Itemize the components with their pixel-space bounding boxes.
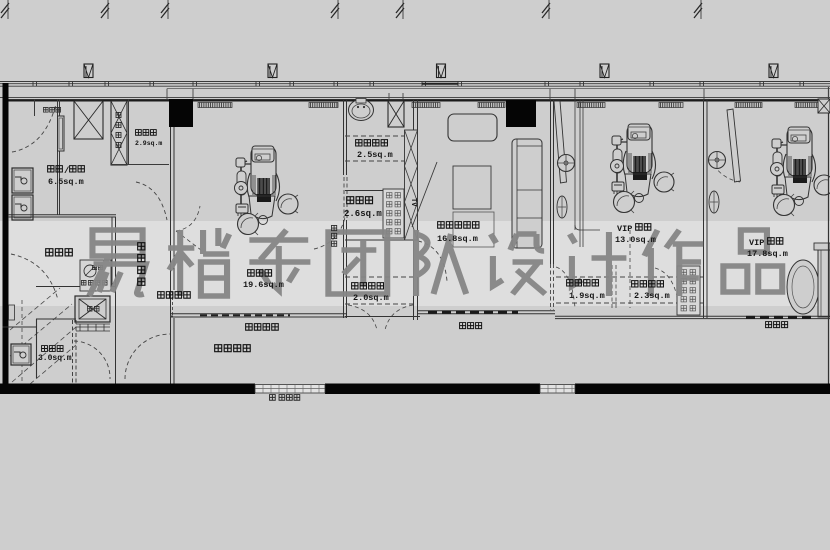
svg-text:TV: TV [409, 198, 417, 207]
svg-text:VIP: VIP [749, 238, 764, 248]
svg-text:3.0sq.m: 3.0sq.m [38, 354, 72, 363]
svg-text:1.9sq.m: 1.9sq.m [569, 291, 605, 301]
svg-text:2.3sq.m: 2.3sq.m [634, 291, 670, 301]
svg-text:13.0sq.m: 13.0sq.m [615, 235, 656, 245]
svg-text:2.6sq.m: 2.6sq.m [344, 209, 382, 219]
svg-text:19.6sq.m: 19.6sq.m [243, 280, 284, 290]
svg-text:2.5sq.m: 2.5sq.m [357, 150, 393, 160]
svg-text:2.0sq.m: 2.0sq.m [353, 293, 389, 303]
svg-text:/: / [64, 166, 69, 176]
svg-text:16.8sq.m: 16.8sq.m [437, 234, 478, 244]
svg-text:VIP: VIP [617, 224, 632, 234]
svg-text:2.9sq.m: 2.9sq.m [135, 140, 162, 147]
svg-text:17.8sq.m: 17.8sq.m [747, 249, 788, 259]
svg-text:6.5sq.m: 6.5sq.m [48, 177, 84, 187]
